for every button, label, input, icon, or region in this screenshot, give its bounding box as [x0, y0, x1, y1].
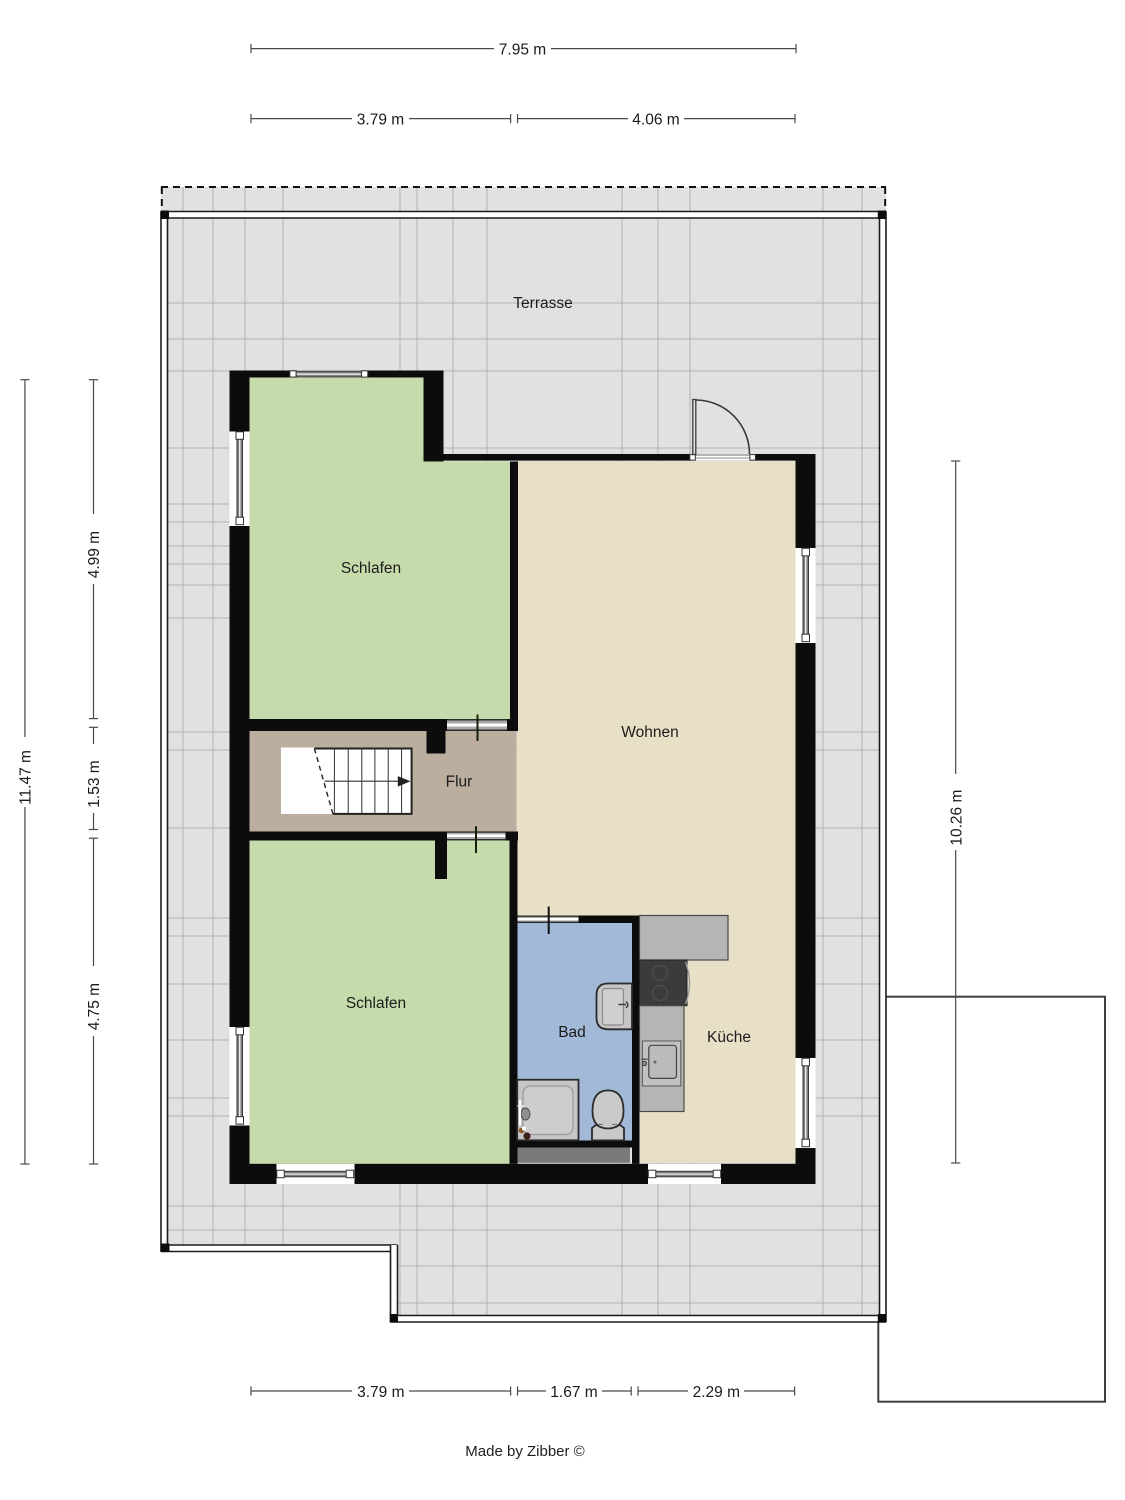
svg-text:Terrasse: Terrasse: [513, 295, 572, 312]
svg-text:1.67 m: 1.67 m: [550, 1384, 597, 1401]
svg-text:4.75 m: 4.75 m: [86, 983, 103, 1030]
svg-text:11.47 m: 11.47 m: [18, 750, 35, 805]
svg-text:1.53 m: 1.53 m: [86, 760, 103, 807]
svg-text:Schlafen: Schlafen: [341, 560, 401, 577]
svg-text:2.29 m: 2.29 m: [693, 1384, 740, 1401]
svg-text:Wohnen: Wohnen: [621, 724, 678, 741]
svg-text:4.06 m: 4.06 m: [632, 112, 679, 129]
svg-text:3.79 m: 3.79 m: [357, 112, 404, 129]
svg-text:Schlafen: Schlafen: [346, 995, 406, 1012]
svg-text:10.26 m: 10.26 m: [948, 790, 965, 846]
svg-text:7.95 m: 7.95 m: [499, 42, 546, 59]
svg-text:Made by Zibber ©: Made by Zibber ©: [465, 1443, 584, 1460]
svg-text:Küche: Küche: [707, 1029, 751, 1046]
svg-text:4.99 m: 4.99 m: [86, 531, 103, 578]
svg-text:Bad: Bad: [558, 1024, 586, 1041]
svg-text:3.79 m: 3.79 m: [357, 1384, 404, 1401]
svg-text:Flur: Flur: [446, 774, 473, 791]
